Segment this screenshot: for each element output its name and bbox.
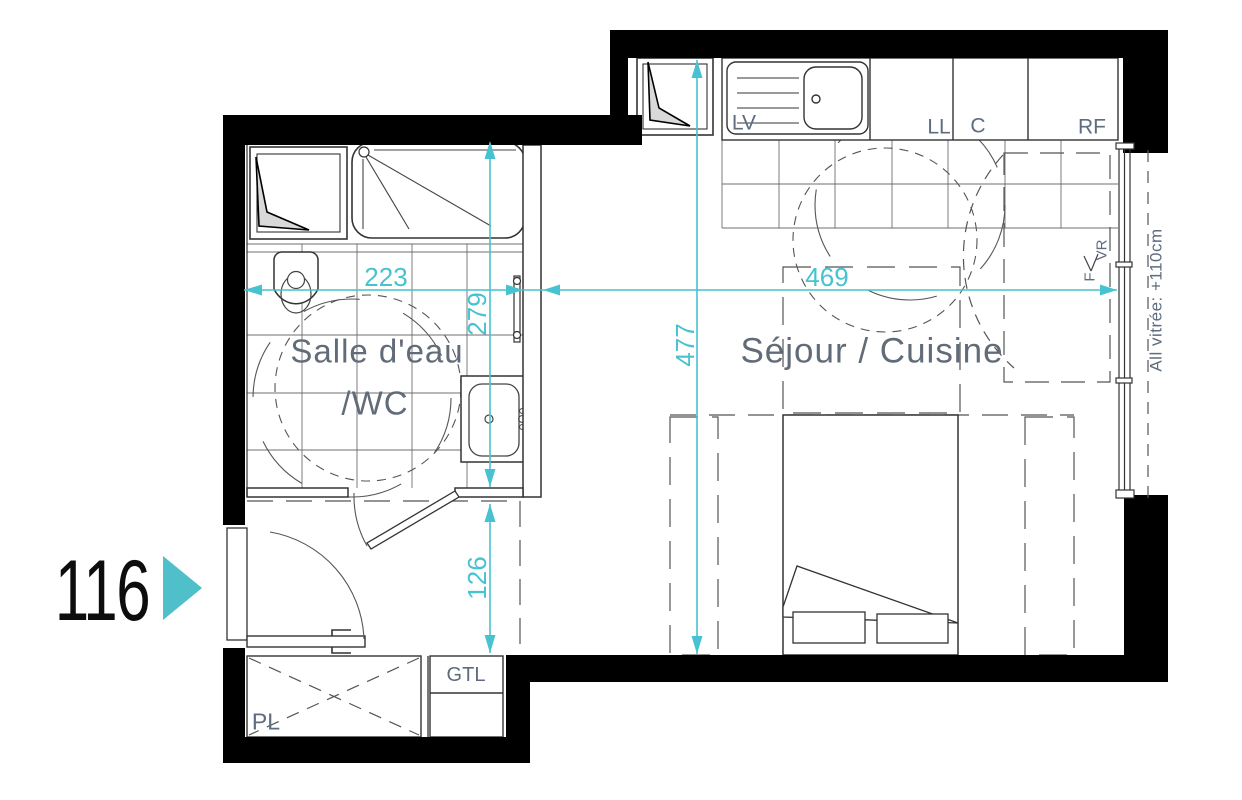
gtl-label: GTL [447,665,486,685]
entrance-door [227,528,365,653]
cooktop-label: C [970,116,985,137]
kitchen-duct [637,58,713,135]
bathroom-label-line1: Salle d'eau [290,335,463,368]
window-glazing [1116,143,1148,503]
living-room-label: Séjour / Cuisine [740,334,1003,369]
bathroom-door [354,491,459,549]
unit-number: 116 [55,548,149,634]
dim-bath-width: 223 [364,264,407,290]
bathroom-label-line2: /WC [341,387,408,420]
window-vr-label: VR [1095,240,1110,261]
window-f-label: F [1083,272,1098,281]
dim-entry-depth: 126 [464,556,490,599]
floor-plan-drawing [0,0,1242,800]
dim-living-depth: 477 [672,323,698,366]
towel-radiator [514,276,521,342]
bed-pillow [877,614,948,643]
kitchen-counter [722,58,1118,140]
washbasin [461,376,527,462]
closet-pl-label: PL [252,711,280,734]
washer-label: LL [927,117,950,138]
glazing-note: All vitrée: +110cm [1148,228,1165,371]
bed [783,415,958,655]
bathroom-duct [250,147,347,239]
shower [352,142,525,238]
unit-arrow-icon [163,556,202,620]
dim-living-width: 469 [805,264,848,290]
bed-pillow [793,612,865,643]
fridge-label: RF [1078,117,1106,138]
dim-bath-depth: 279 [464,292,490,335]
toilet [274,252,318,313]
dishwasher-label: LV [732,113,756,134]
entrance-door-swing [270,532,364,639]
floor-plan: 116 Salle d'eau /WC Séjour / Cuisine 223… [0,0,1242,800]
